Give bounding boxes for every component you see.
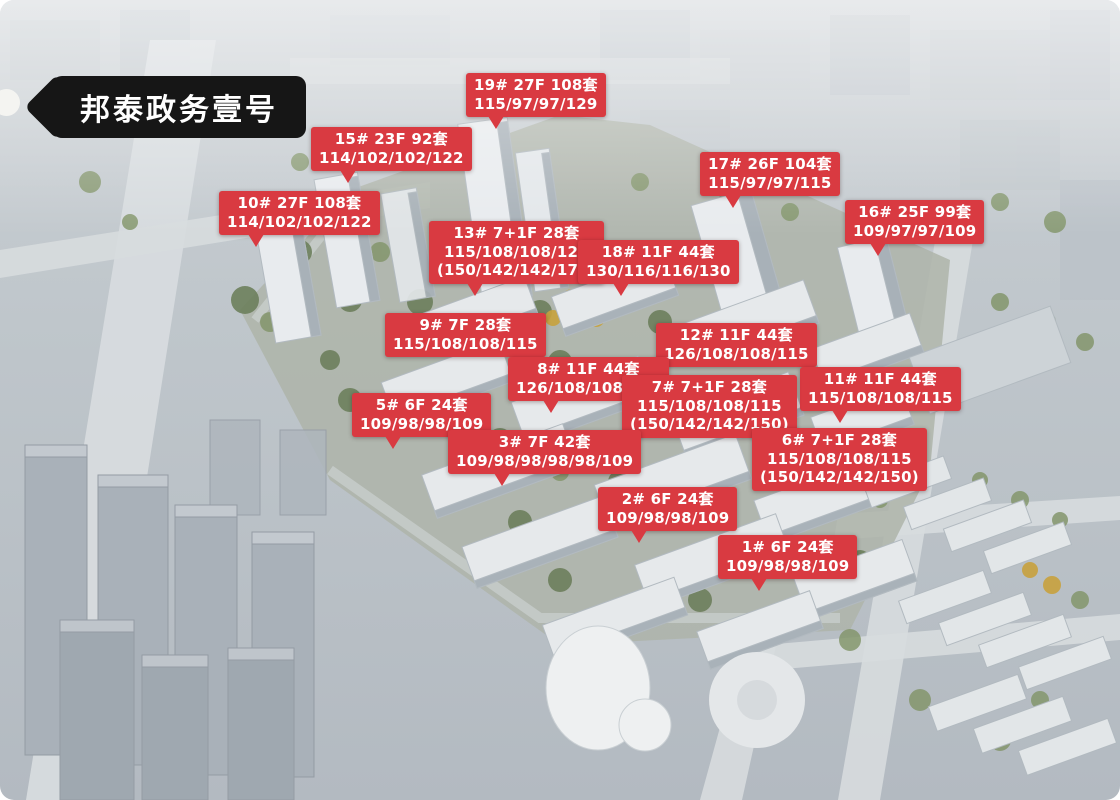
label-line: 18# 11F 44套 [586,243,731,262]
label-line: 10# 27F 108套 [227,194,372,213]
label-line: (150/142/142/177) [437,261,596,280]
label-line: 115/108/108/115 [808,389,953,408]
label-pointer [870,243,886,256]
building-label-2: 2# 6F 24套109/98/98/109 [598,487,737,531]
label-line: 115/108/108/126 [437,243,596,262]
project-name-banner: 邦泰政务壹号 [52,76,306,138]
label-pointer [725,195,741,208]
label-pointer [631,530,647,543]
label-line: 13# 7+1F 28套 [437,224,596,243]
building-label-15: 15# 23F 92套114/102/102/122 [311,127,472,171]
label-line: 126/108/108/115 [664,345,809,364]
label-line: 115/108/108/115 [760,450,919,469]
building-label-17: 17# 26F 104套115/97/97/115 [700,152,840,196]
label-line: 114/102/102/122 [319,149,464,168]
label-pointer [248,234,264,247]
building-label-1: 1# 6F 24套109/98/98/109 [718,535,857,579]
label-line: 2# 6F 24套 [606,490,729,509]
label-line: 9# 7F 28套 [393,316,538,335]
label-line: 5# 6F 24套 [360,396,483,415]
label-pointer [543,400,559,413]
label-line: 12# 11F 44套 [664,326,809,345]
label-line: 115/108/108/115 [630,397,789,416]
label-line: 109/98/98/98/98/109 [456,452,633,471]
label-pointer [494,473,510,486]
building-label-12: 12# 11F 44套126/108/108/115 [656,323,817,367]
aerial-site-plan: 邦泰政务壹号 19# 27F 108套115/97/97/12915# 23F … [0,0,1120,800]
building-label-9: 9# 7F 28套115/108/108/115 [385,313,546,357]
building-label-10: 10# 27F 108套114/102/102/122 [219,191,380,235]
project-name: 邦泰政务壹号 [80,85,278,129]
label-line: 114/102/102/122 [227,213,372,232]
label-line: 115/97/97/129 [474,95,598,114]
label-line: 109/97/97/109 [853,222,976,241]
label-line: 16# 25F 99套 [853,203,976,222]
label-line: 19# 27F 108套 [474,76,598,95]
building-label-11: 11# 11F 44套115/108/108/115 [800,367,961,411]
building-label-3: 3# 7F 42套109/98/98/98/98/109 [448,430,641,474]
label-pointer [751,578,767,591]
label-line: 3# 7F 42套 [456,433,633,452]
label-pointer [832,410,848,423]
building-label-18: 18# 11F 44套130/116/116/130 [578,240,739,284]
label-line: 130/116/116/130 [586,262,731,281]
label-line: 17# 26F 104套 [708,155,832,174]
label-line: 115/97/97/115 [708,174,832,193]
label-line: 1# 6F 24套 [726,538,849,557]
label-line: 15# 23F 92套 [319,130,464,149]
building-label-6: 6# 7+1F 28套115/108/108/115(150/142/142/1… [752,428,927,491]
label-line: 115/108/108/115 [393,335,538,354]
building-label-16: 16# 25F 99套109/97/97/109 [845,200,984,244]
label-pointer [488,116,504,129]
label-pointer [613,283,629,296]
label-pointer [340,170,356,183]
label-line: 11# 11F 44套 [808,370,953,389]
label-line: 7# 7+1F 28套 [630,378,789,397]
label-line: 109/98/98/109 [606,509,729,528]
label-pointer [467,283,483,296]
label-line: 6# 7+1F 28套 [760,431,919,450]
label-pointer [385,436,401,449]
building-label-19: 19# 27F 108套115/97/97/129 [466,73,606,117]
label-line: 109/98/98/109 [726,557,849,576]
label-line: (150/142/142/150) [760,468,919,487]
